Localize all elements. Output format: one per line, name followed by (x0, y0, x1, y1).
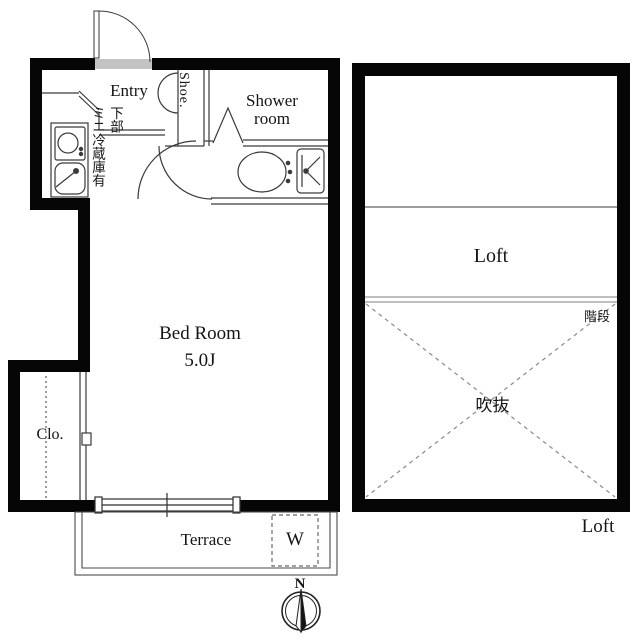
terrace-label: Terrace (158, 530, 254, 550)
entry-door (94, 11, 150, 62)
compass-icon (282, 589, 320, 632)
closet-label: Clo. (26, 426, 74, 444)
shoe-cabinet-label: Shoe. (175, 72, 191, 142)
interior-door-arcs (138, 141, 212, 199)
sink-icon (55, 163, 85, 194)
bedroom-size: 5.0J (184, 350, 215, 371)
shower-room-label: Shower room (214, 92, 330, 128)
floorplan-canvas: Entry Shoe. Shower room 下部 ミニ冷蔵庫有 Bed Ro… (0, 0, 640, 640)
toilet-room-wall (211, 198, 328, 204)
closet-door-handle (82, 433, 91, 445)
toilet-fixture (238, 149, 324, 193)
faucet-icon (56, 171, 76, 187)
loft-room-label: Loft (441, 245, 541, 268)
loft-stairs-label: 階段 (579, 306, 615, 325)
kitchen-counter (51, 123, 88, 197)
compass-north-label: N (288, 576, 312, 593)
loft-caption: Loft (568, 516, 628, 538)
terrace-window (95, 493, 240, 517)
fridge-note-col2: ミニ冷蔵庫有 (88, 106, 106, 218)
shower-room-label-line1: Shower (246, 91, 298, 110)
bedroom-label: Bed Room 5.0J (115, 320, 285, 374)
burner-icon (58, 133, 78, 153)
basin-icon (297, 149, 324, 193)
washer-label: W (272, 529, 318, 551)
entry-label: Entry (93, 81, 165, 101)
fridge-note: 下部 ミニ冷蔵庫有 (88, 106, 124, 218)
fridge-note-col1: 下部 (106, 106, 124, 218)
loft-void-label: 吹抜 (455, 391, 530, 416)
bedroom-name: Bed Room (159, 323, 241, 344)
shower-room-label-line2: room (254, 109, 290, 128)
toilet-bowl-icon (238, 152, 286, 192)
